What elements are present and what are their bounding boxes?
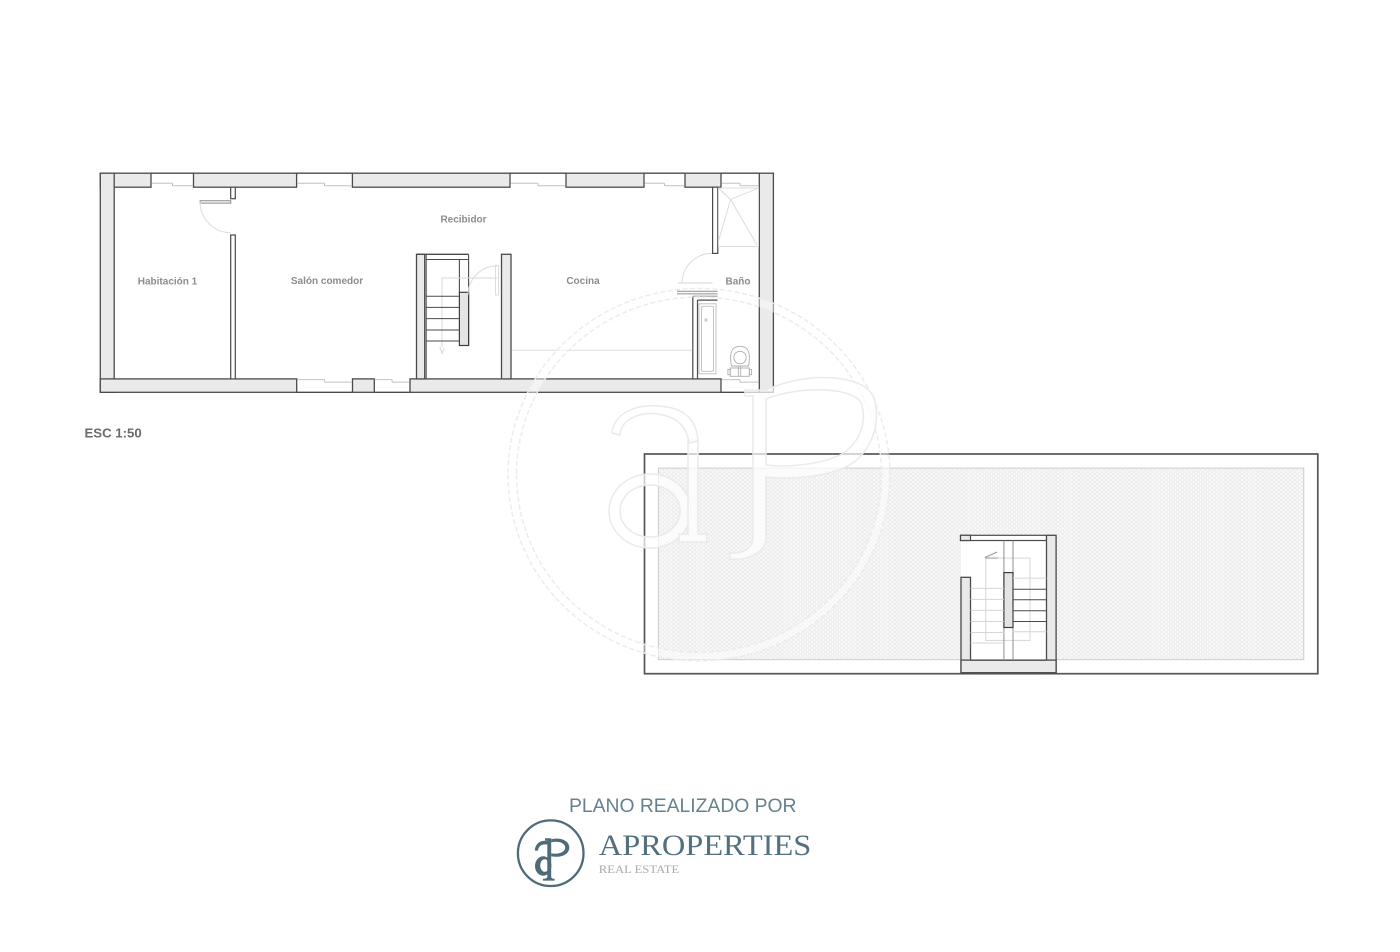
svg-text:Cocina: Cocina [566, 276, 600, 287]
svg-text:Salón comedor: Salón comedor [291, 276, 363, 287]
svg-text:APROPERTIES: APROPERTIES [599, 830, 812, 862]
svg-text:Habitación 1: Habitación 1 [138, 277, 198, 288]
svg-text:Recibidor: Recibidor [440, 215, 486, 226]
svg-text:ESC 1:50: ESC 1:50 [85, 426, 142, 441]
svg-text:PLANO REALIZADO POR: PLANO REALIZADO POR [569, 795, 797, 817]
svg-text:Baño: Baño [726, 277, 751, 288]
svg-text:REAL ESTATE: REAL ESTATE [599, 862, 680, 876]
